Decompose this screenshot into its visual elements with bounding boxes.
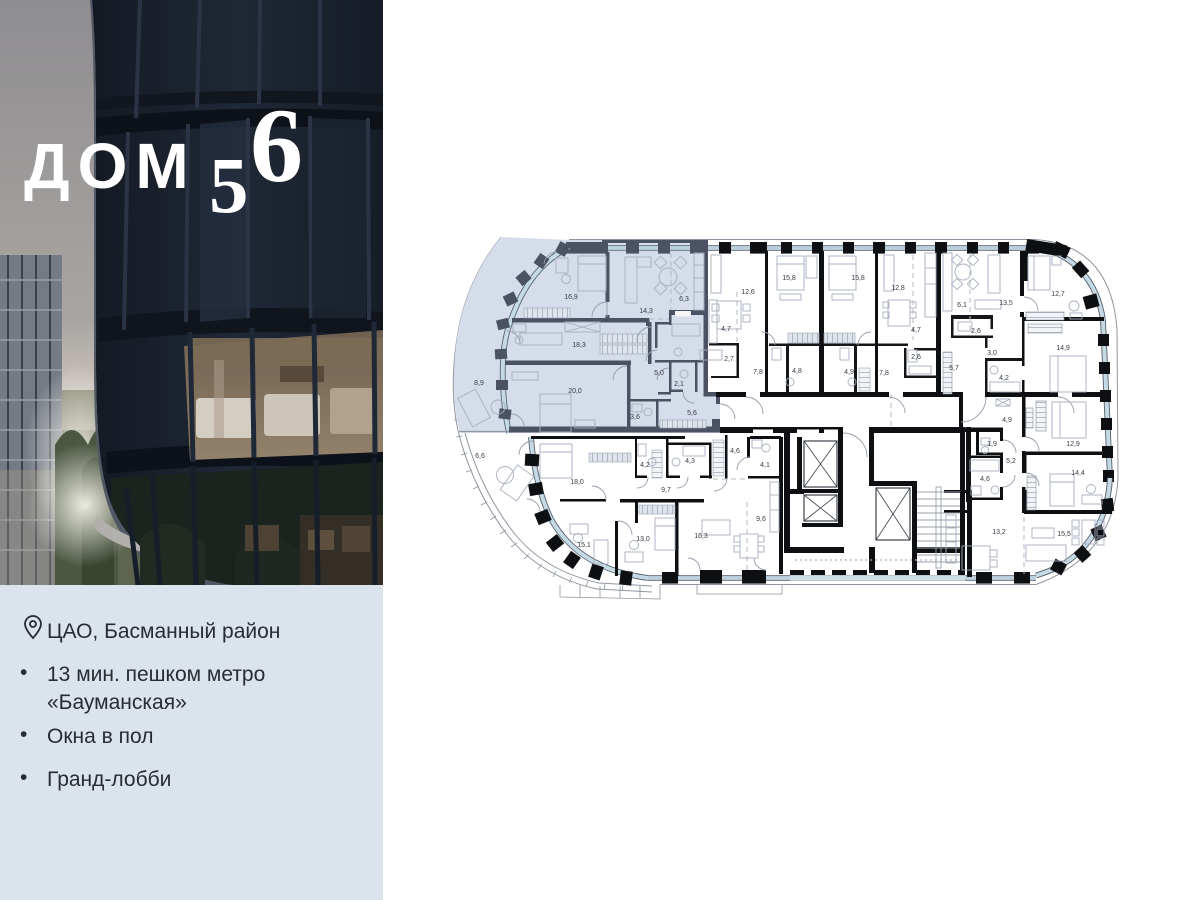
svg-text:3,0: 3,0: [987, 350, 997, 357]
svg-text:14,3: 14,3: [639, 308, 653, 315]
svg-text:9,7: 9,7: [661, 487, 671, 494]
svg-text:4,9: 4,9: [844, 369, 854, 376]
svg-text:2,7: 2,7: [724, 356, 734, 363]
svg-text:12,7: 12,7: [1051, 291, 1065, 298]
svg-text:14,9: 14,9: [1056, 345, 1070, 352]
svg-text:6,3: 6,3: [679, 296, 689, 303]
svg-text:4,3: 4,3: [685, 458, 695, 465]
svg-text:5,7: 5,7: [949, 365, 959, 372]
svg-text:7,8: 7,8: [753, 369, 763, 376]
svg-text:12,8: 12,8: [891, 285, 905, 292]
svg-text:5,2: 5,2: [1006, 458, 1016, 465]
svg-text:1,9: 1,9: [987, 441, 997, 448]
svg-text:16,3: 16,3: [694, 533, 708, 540]
svg-text:12,9: 12,9: [1066, 441, 1080, 448]
svg-text:15,1: 15,1: [577, 542, 591, 549]
svg-text:4,6: 4,6: [730, 448, 740, 455]
svg-text:4,1: 4,1: [760, 462, 770, 469]
svg-text:16,9: 16,9: [564, 294, 578, 301]
svg-text:18,0: 18,0: [570, 479, 584, 486]
svg-text:4,7: 4,7: [911, 327, 921, 334]
svg-text:13,5: 13,5: [999, 300, 1013, 307]
svg-text:18,3: 18,3: [572, 342, 586, 349]
svg-text:6,1: 6,1: [957, 302, 967, 309]
svg-text:5,0: 5,0: [654, 370, 664, 377]
svg-text:13,2: 13,2: [992, 529, 1006, 536]
svg-text:2,6: 2,6: [971, 328, 981, 335]
svg-text:4,2: 4,2: [999, 375, 1009, 382]
svg-text:13,0: 13,0: [636, 536, 650, 543]
svg-text:4,6: 4,6: [980, 476, 990, 483]
svg-text:12,6: 12,6: [741, 289, 755, 296]
svg-text:15,8: 15,8: [782, 275, 796, 282]
svg-text:2,6: 2,6: [911, 354, 921, 361]
svg-text:4,8: 4,8: [792, 368, 802, 375]
svg-text:7,8: 7,8: [879, 370, 889, 377]
svg-text:8,9: 8,9: [474, 380, 484, 387]
svg-text:15,5: 15,5: [1057, 531, 1071, 538]
svg-text:2,1: 2,1: [674, 381, 684, 388]
svg-text:14,4: 14,4: [1071, 470, 1085, 477]
svg-text:6,6: 6,6: [475, 453, 485, 460]
svg-text:20,0: 20,0: [568, 388, 582, 395]
svg-text:4,7: 4,7: [721, 326, 731, 333]
svg-text:4,9: 4,9: [1002, 417, 1012, 424]
svg-text:5,6: 5,6: [687, 410, 697, 417]
svg-text:3,6: 3,6: [630, 414, 640, 421]
svg-text:15,8: 15,8: [851, 275, 865, 282]
svg-text:9,6: 9,6: [756, 516, 766, 523]
svg-text:4,2: 4,2: [640, 462, 650, 469]
